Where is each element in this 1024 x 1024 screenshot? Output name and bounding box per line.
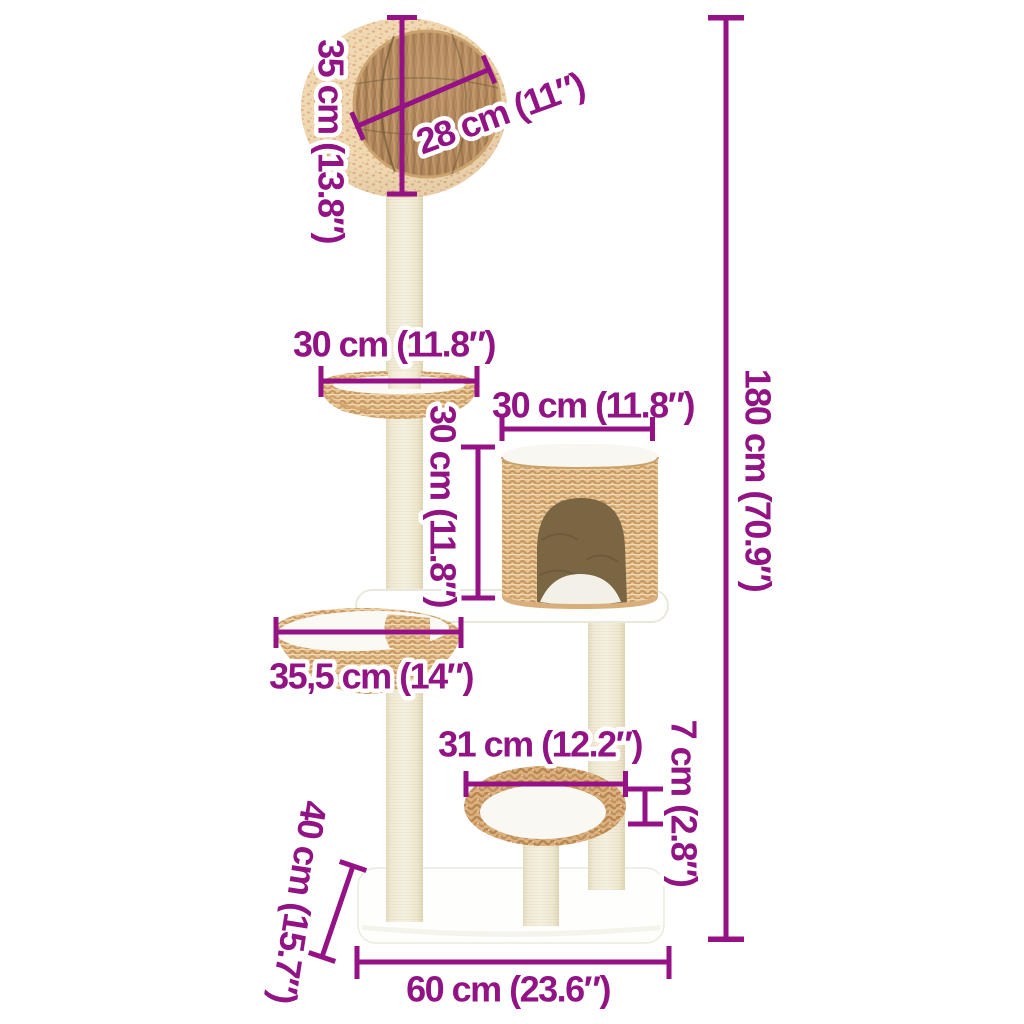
svg-text:30 cm (11.8″): 30 cm (11.8″) bbox=[492, 385, 694, 426]
svg-text:30 cm (11.8″): 30 cm (11.8″) bbox=[293, 324, 495, 365]
svg-text:7 cm (2.8″): 7 cm (2.8″) bbox=[664, 720, 705, 887]
svg-text:180 cm (70.9″): 180 cm (70.9″) bbox=[738, 369, 779, 592]
svg-text:35 cm (13.8″): 35 cm (13.8″) bbox=[311, 39, 352, 243]
svg-text:31 cm (12.2″): 31 cm (12.2″) bbox=[438, 724, 642, 765]
svg-text:60 cm (23.6″): 60 cm (23.6″) bbox=[406, 969, 610, 1010]
svg-text:30 cm (11.8″): 30 cm (11.8″) bbox=[423, 405, 464, 607]
svg-text:35,5 cm (14″): 35,5 cm (14″) bbox=[269, 656, 473, 697]
svg-text:40 cm (15.7″): 40 cm (15.7″) bbox=[263, 798, 335, 1006]
